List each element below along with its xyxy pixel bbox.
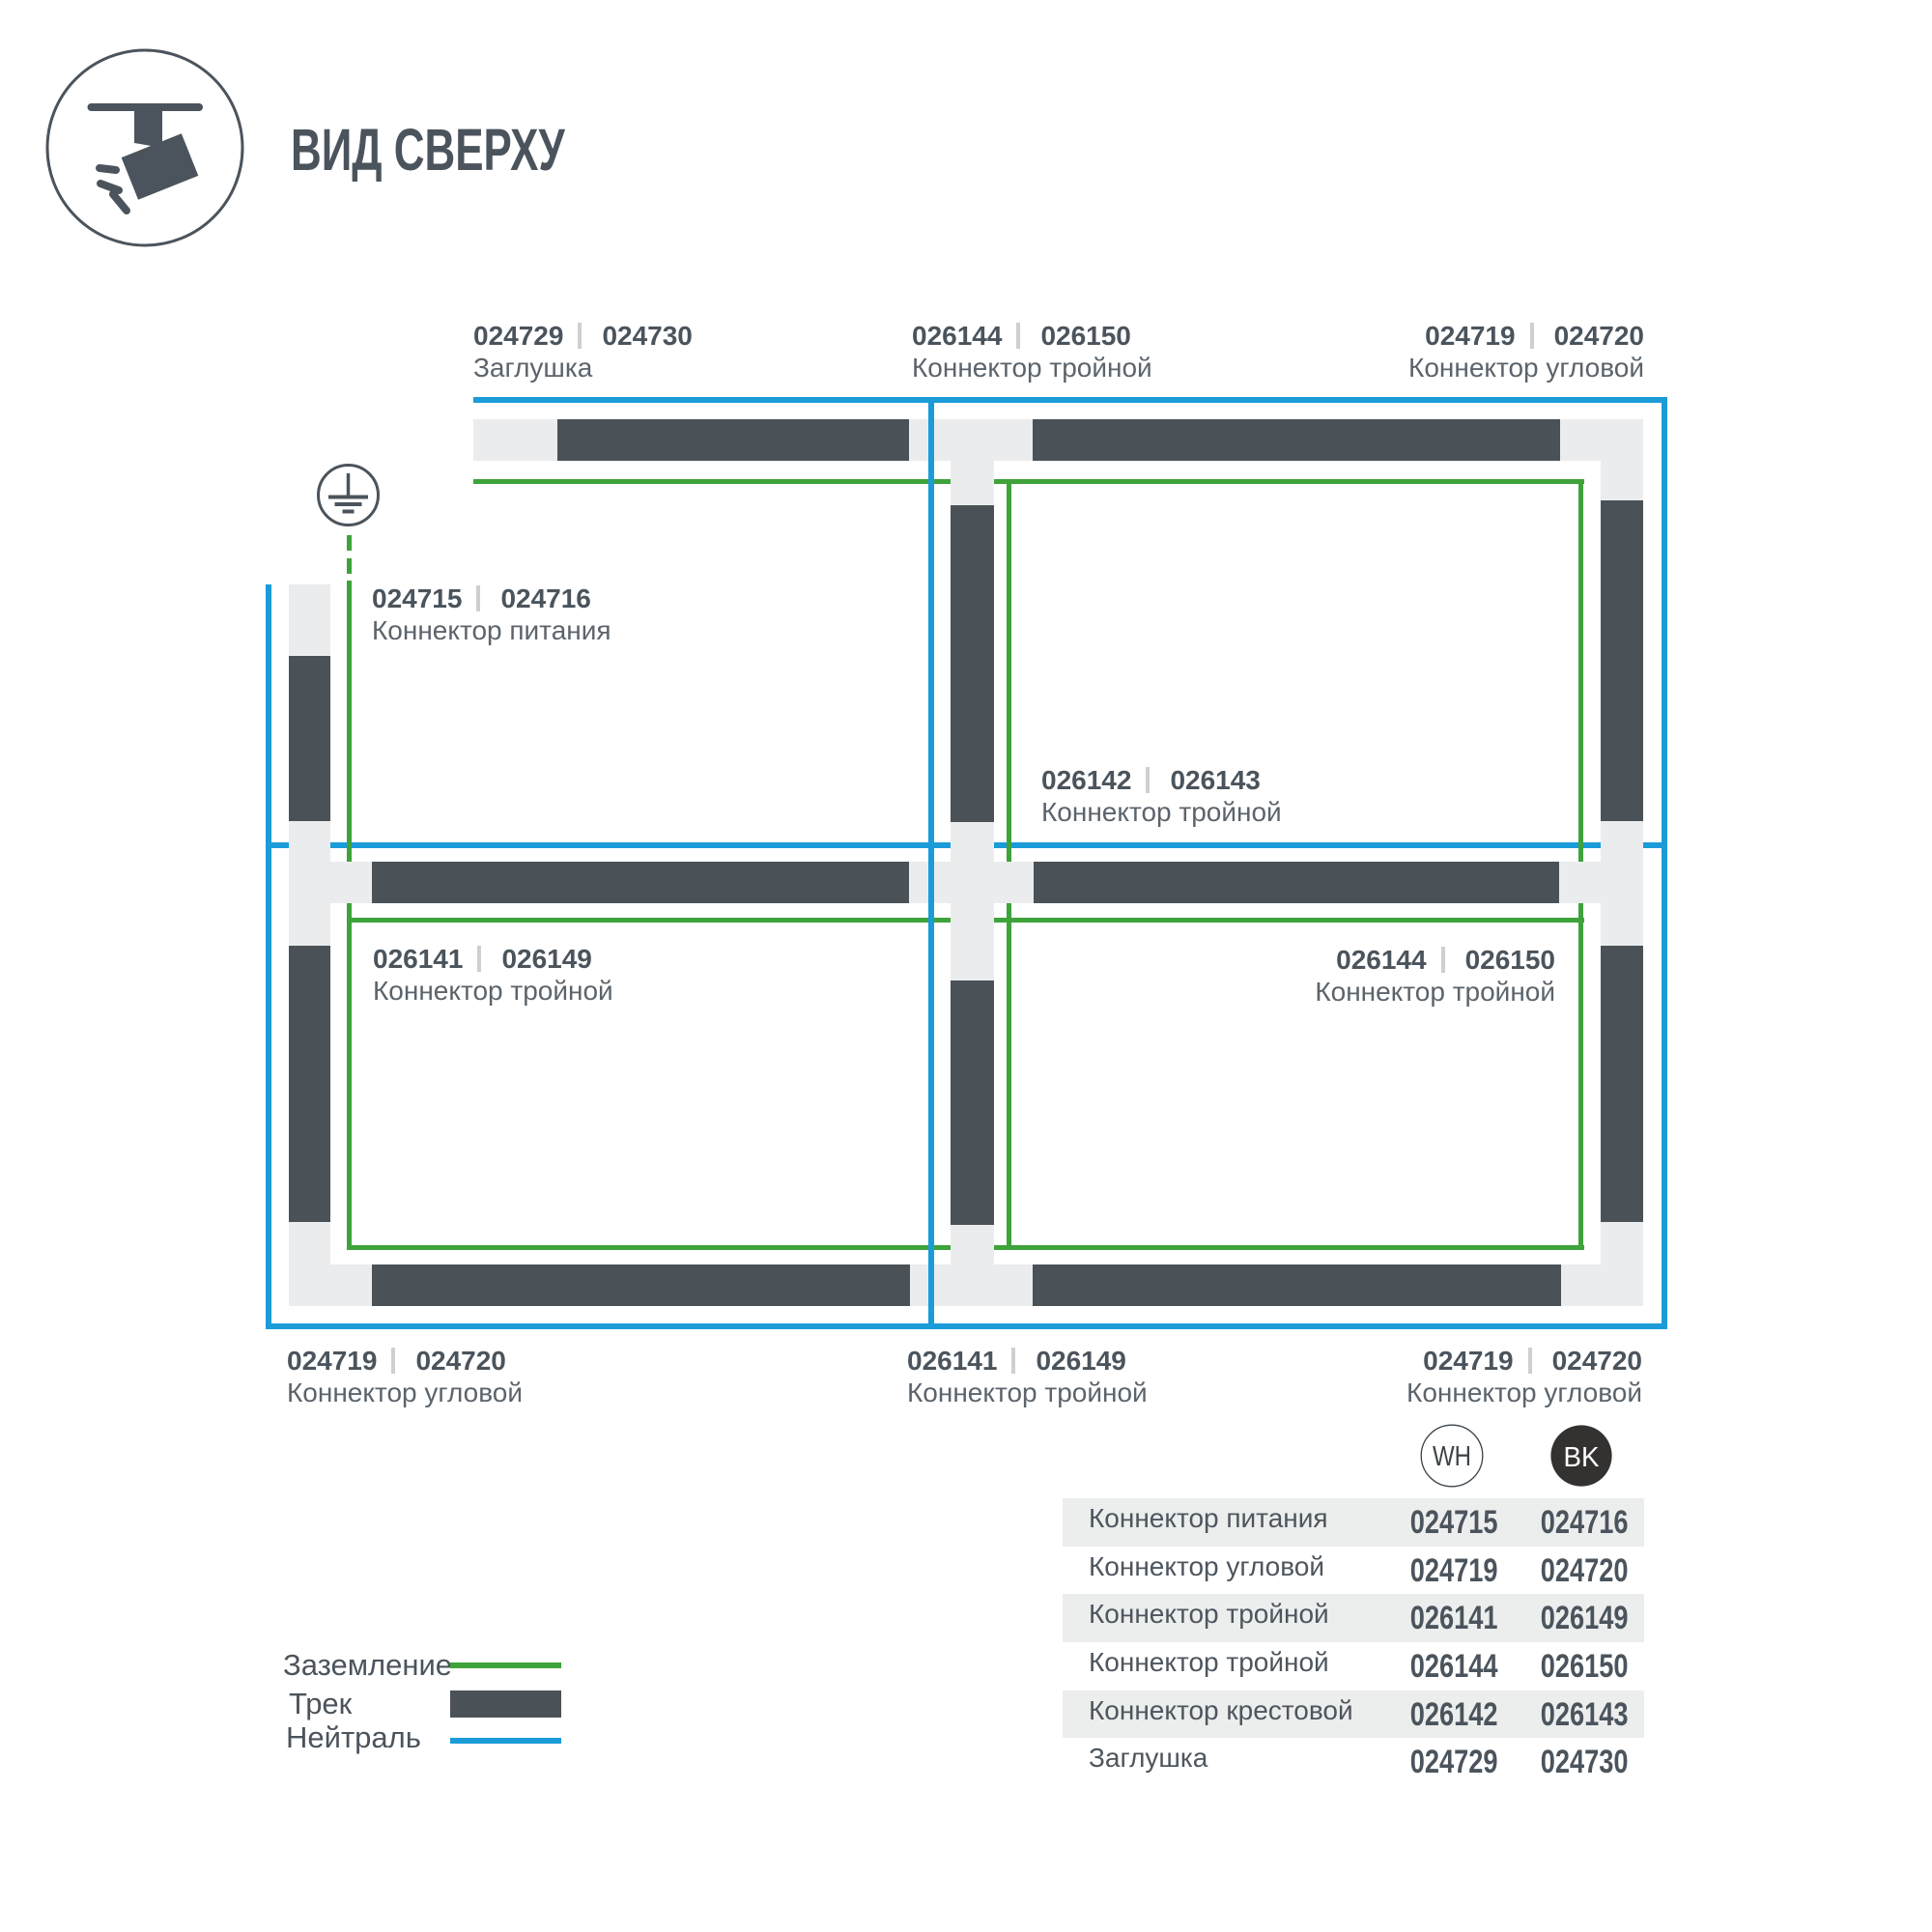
svg-text:BK: BK <box>1564 1442 1601 1473</box>
svg-text:WH: WH <box>1433 1441 1471 1472</box>
